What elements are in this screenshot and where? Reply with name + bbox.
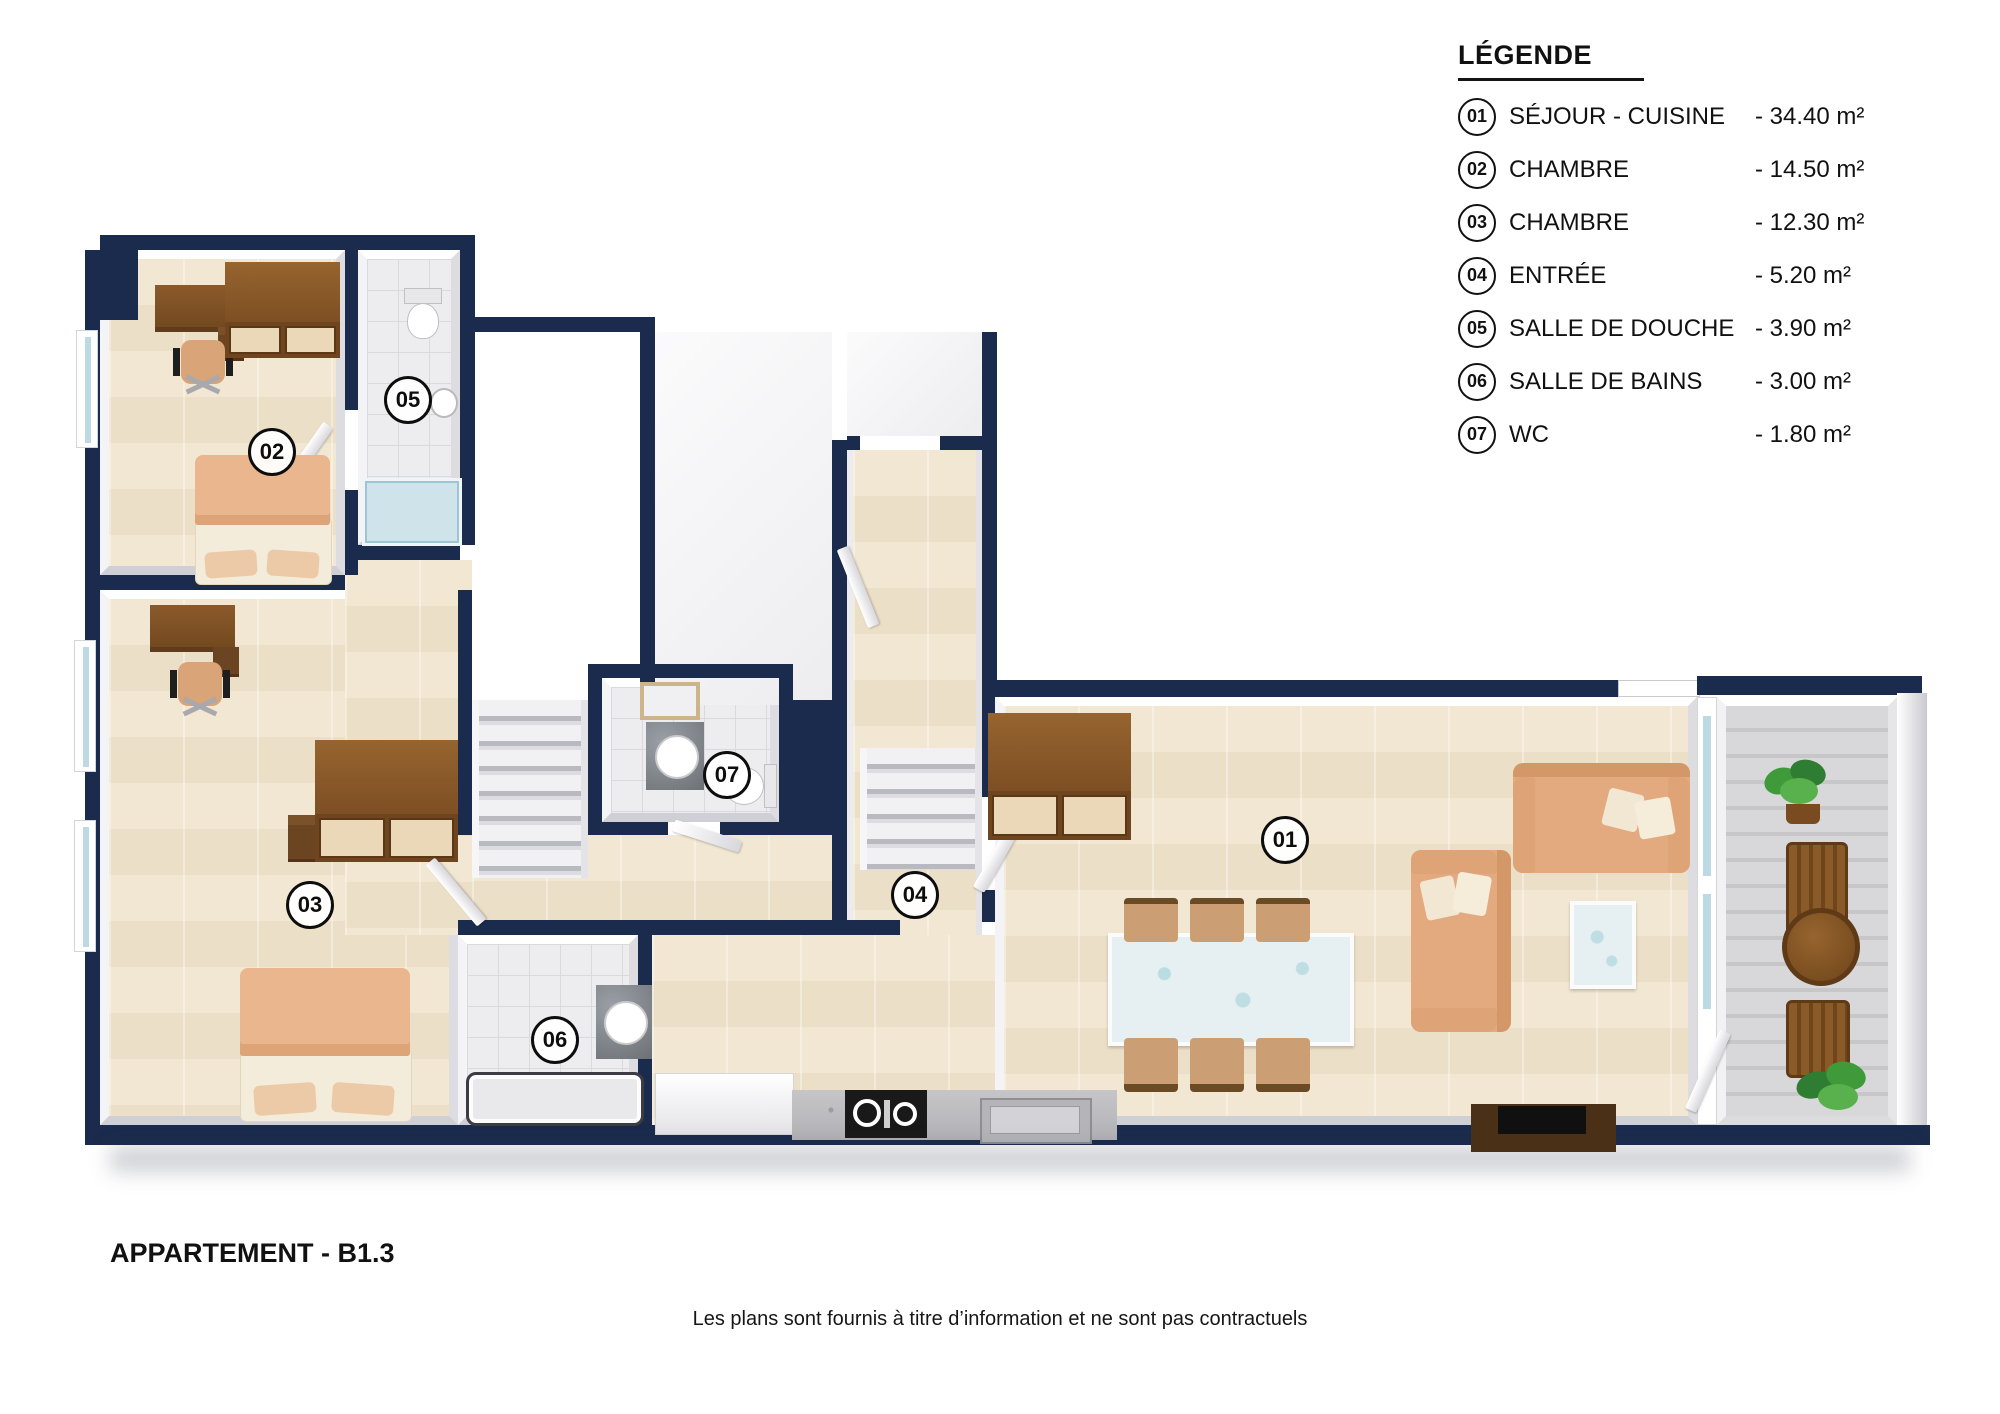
wall-hall-bottom — [458, 920, 900, 935]
room-badge-01: 01 — [1261, 816, 1309, 864]
room-badge-07: 07 — [703, 751, 751, 799]
legend-area-02: - 14.50 m² — [1755, 156, 1864, 184]
page-title: APPARTEMENT - B1.3 — [110, 1238, 395, 1269]
side-drawers-room03 — [288, 815, 315, 862]
wall-corridor-right-low — [982, 890, 995, 922]
room-badge-05-number: 05 — [396, 387, 420, 413]
wall-living-top — [995, 680, 1618, 697]
legend-title-underline — [1458, 78, 1644, 81]
wall-03-right-mid — [458, 700, 472, 835]
legend-label-04: ENTRÉE — [1509, 262, 1606, 290]
wall-02-05-lower — [345, 490, 358, 575]
legend-circle-03: 03 — [1458, 204, 1496, 242]
legend-label-06: SALLE DE BAINS — [1509, 368, 1702, 396]
wall-07-bottom-b — [720, 822, 793, 835]
stove — [845, 1090, 927, 1138]
kitchen-cabinet-white — [655, 1073, 794, 1135]
legend-area-07: - 1.80 m² — [1755, 421, 1851, 449]
room-badge-06: 06 — [531, 1016, 579, 1064]
legend-row: 06 SALLE DE BAINS - 3.00 m² — [1458, 355, 1938, 408]
legend-circle-05: 05 — [1458, 310, 1496, 348]
stairs-corridor — [860, 748, 982, 870]
bathtub-room06 — [466, 1072, 644, 1126]
room-badge-07-number: 07 — [715, 762, 739, 788]
legend-row: 07 WC - 1.80 m² — [1458, 408, 1938, 461]
legend-label-03: CHAMBRE — [1509, 209, 1629, 237]
window-living-top — [1618, 680, 1700, 697]
toilet-room05 — [396, 288, 448, 340]
office-chair-room02 — [173, 336, 233, 394]
wall-corridor-top-b — [940, 436, 982, 450]
wall-neck-top — [475, 317, 655, 332]
wall-05-bottom — [345, 545, 460, 560]
wardrobe-room02 — [225, 262, 340, 358]
dining-chair-top-1 — [1124, 898, 1178, 942]
room-badge-04: 04 — [891, 871, 939, 919]
room-badge-03-number: 03 — [298, 892, 322, 918]
wall-block-07-corridor — [793, 700, 833, 835]
plant-balcony-top — [1762, 760, 1842, 830]
room-badge-01-number: 01 — [1273, 827, 1297, 853]
room-badge-06-number: 06 — [543, 1027, 567, 1053]
sofa-large — [1411, 850, 1511, 1032]
dining-chair-bottom-1 — [1124, 1038, 1178, 1092]
legend-area-05: - 3.90 m² — [1755, 315, 1851, 343]
office-chair-room03 — [170, 658, 230, 716]
floor-plan-page: 01 02 03 04 05 06 07 LÉGENDE 01 SÉJOUR -… — [0, 0, 2000, 1414]
legend-circle-06: 06 — [1458, 363, 1496, 401]
wall-wing-top — [100, 235, 475, 250]
legend-row: 03 CHAMBRE - 12.30 m² — [1458, 196, 1938, 249]
dining-chair-bottom-3 — [1256, 1038, 1310, 1092]
room-badge-04-number: 04 — [903, 882, 927, 908]
dining-chair-bottom-2 — [1190, 1038, 1244, 1092]
tv-screen — [1498, 1106, 1586, 1134]
wall-corridor-left — [832, 440, 847, 922]
wall-02-05-upper — [345, 250, 358, 410]
window-room03-b — [74, 820, 96, 952]
legend-circle-04: 04 — [1458, 257, 1496, 295]
room-badge-05: 05 — [384, 376, 432, 424]
room-badge-03: 03 — [286, 881, 334, 929]
plant-balcony-bottom — [1796, 1058, 1882, 1120]
wall-balcony-top — [1697, 676, 1922, 695]
bed-room03 — [240, 968, 410, 1120]
legend-label-02: CHAMBRE — [1509, 156, 1629, 184]
wall-03-right-upper — [458, 590, 472, 700]
building-shadow — [110, 1146, 1910, 1172]
coffee-table — [1570, 901, 1636, 989]
entrance-landing — [655, 332, 832, 705]
entrance-landing-top — [847, 332, 982, 436]
wall-07-left — [588, 678, 602, 835]
sofa-small — [1513, 763, 1690, 873]
wall-neck-left — [640, 317, 655, 707]
room-badge-02-number: 02 — [260, 439, 284, 465]
legend-area-04: - 5.20 m² — [1755, 262, 1851, 290]
wall-wing-right — [460, 250, 475, 545]
legend: LÉGENDE 01 SÉJOUR - CUISINE - 34.40 m² 0… — [1458, 40, 1938, 461]
wardrobe-room03 — [315, 740, 458, 862]
desk-room03 — [150, 605, 235, 652]
legend-rows: 01 SÉJOUR - CUISINE - 34.40 m² 02 CHAMBR… — [1458, 90, 1938, 461]
wall-07-top — [588, 664, 793, 678]
window-room02 — [76, 330, 98, 448]
stairs-west — [472, 700, 588, 878]
legend-row: 02 CHAMBRE - 14.50 m² — [1458, 143, 1938, 196]
dining-chair-top-2 — [1190, 898, 1244, 942]
window-room03-a — [74, 640, 96, 772]
wall-corridor-right-upper — [982, 332, 997, 697]
legend-label-01: SÉJOUR - CUISINE — [1509, 103, 1725, 131]
legend-area-03: - 12.30 m² — [1755, 209, 1864, 237]
kitchen-sink — [980, 1098, 1092, 1144]
tv-cabinet — [1471, 1104, 1616, 1152]
wall-07-bottom-a — [588, 822, 668, 835]
wall-corridor-top-a — [847, 436, 860, 450]
legend-title: LÉGENDE — [1458, 40, 1938, 71]
washbasin-room06 — [596, 985, 652, 1059]
legend-area-06: - 3.00 m² — [1755, 368, 1851, 396]
balcony-outer-wall — [1897, 693, 1927, 1125]
legend-circle-02: 02 — [1458, 151, 1496, 189]
cabinet-living — [988, 713, 1131, 840]
legend-label-07: WC — [1509, 421, 1549, 449]
disclaimer-text: Les plans sont fournis à titre d’informa… — [0, 1308, 2000, 1331]
shower-room05 — [362, 478, 462, 546]
glass-pane-2 — [1703, 894, 1711, 1009]
washbasin-room05 — [430, 388, 458, 418]
dining-chair-top-3 — [1256, 898, 1310, 942]
legend-area-01: - 34.40 m² — [1755, 103, 1864, 131]
legend-label-05: SALLE DE DOUCHE — [1509, 315, 1734, 343]
room-badge-02: 02 — [248, 428, 296, 476]
legend-row: 01 SÉJOUR - CUISINE - 34.40 m² — [1458, 90, 1938, 143]
washbasin-room07 — [646, 722, 704, 790]
legend-circle-07: 07 — [1458, 416, 1496, 454]
legend-circle-01: 01 — [1458, 98, 1496, 136]
glass-pane-1 — [1703, 716, 1711, 876]
legend-row: 04 ENTRÉE - 5.20 m² — [1458, 249, 1938, 302]
balcony-table — [1782, 908, 1860, 986]
wall-corner-block — [100, 235, 138, 320]
legend-row: 05 SALLE DE DOUCHE - 3.90 m² — [1458, 302, 1938, 355]
mirror-room07 — [640, 682, 700, 720]
dining-table — [1108, 933, 1354, 1046]
wall-07-right — [779, 664, 793, 835]
